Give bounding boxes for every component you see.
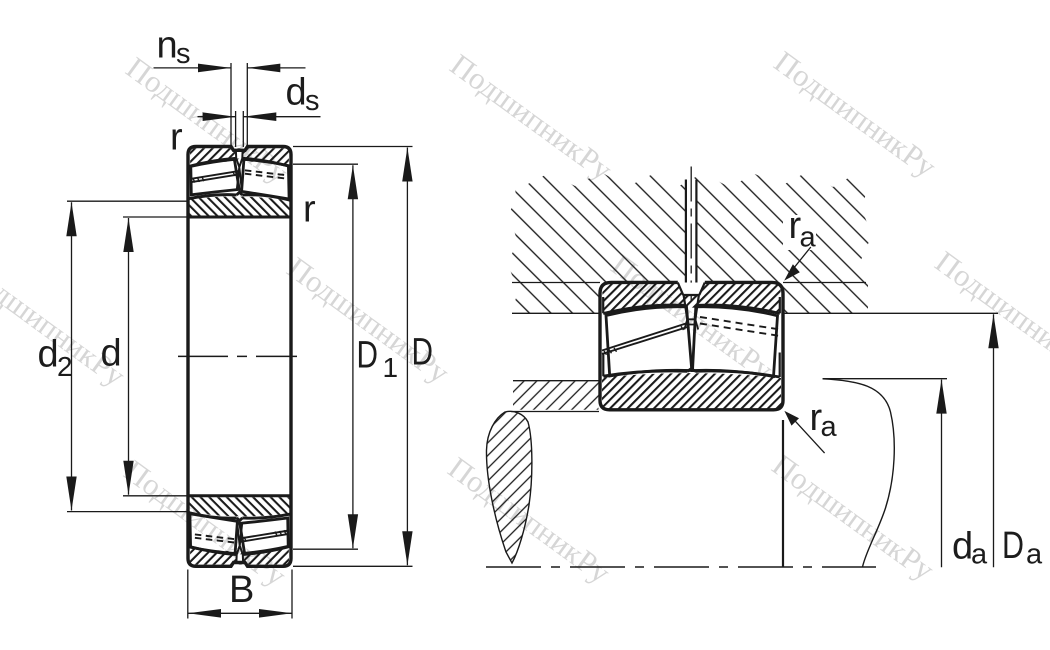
svg-text:D: D <box>1002 525 1024 567</box>
svg-text:d: d <box>101 333 122 375</box>
svg-text:r: r <box>170 117 183 159</box>
svg-text:r: r <box>303 189 316 231</box>
svg-text:D: D <box>412 332 434 374</box>
svg-text:1: 1 <box>383 352 399 383</box>
svg-text:d: d <box>286 72 307 114</box>
svg-text:n: n <box>157 25 178 67</box>
svg-text:B: B <box>229 569 254 611</box>
svg-text:a: a <box>971 539 988 571</box>
svg-text:a: a <box>821 411 838 443</box>
svg-text:d: d <box>952 526 973 568</box>
svg-text:a: a <box>1026 539 1043 571</box>
svg-text:s: s <box>305 85 320 117</box>
svg-text:s: s <box>176 38 191 70</box>
svg-text:2: 2 <box>57 351 73 382</box>
svg-text:D: D <box>357 335 379 377</box>
svg-text:a: a <box>800 222 817 254</box>
svg-text:d: d <box>38 334 59 376</box>
